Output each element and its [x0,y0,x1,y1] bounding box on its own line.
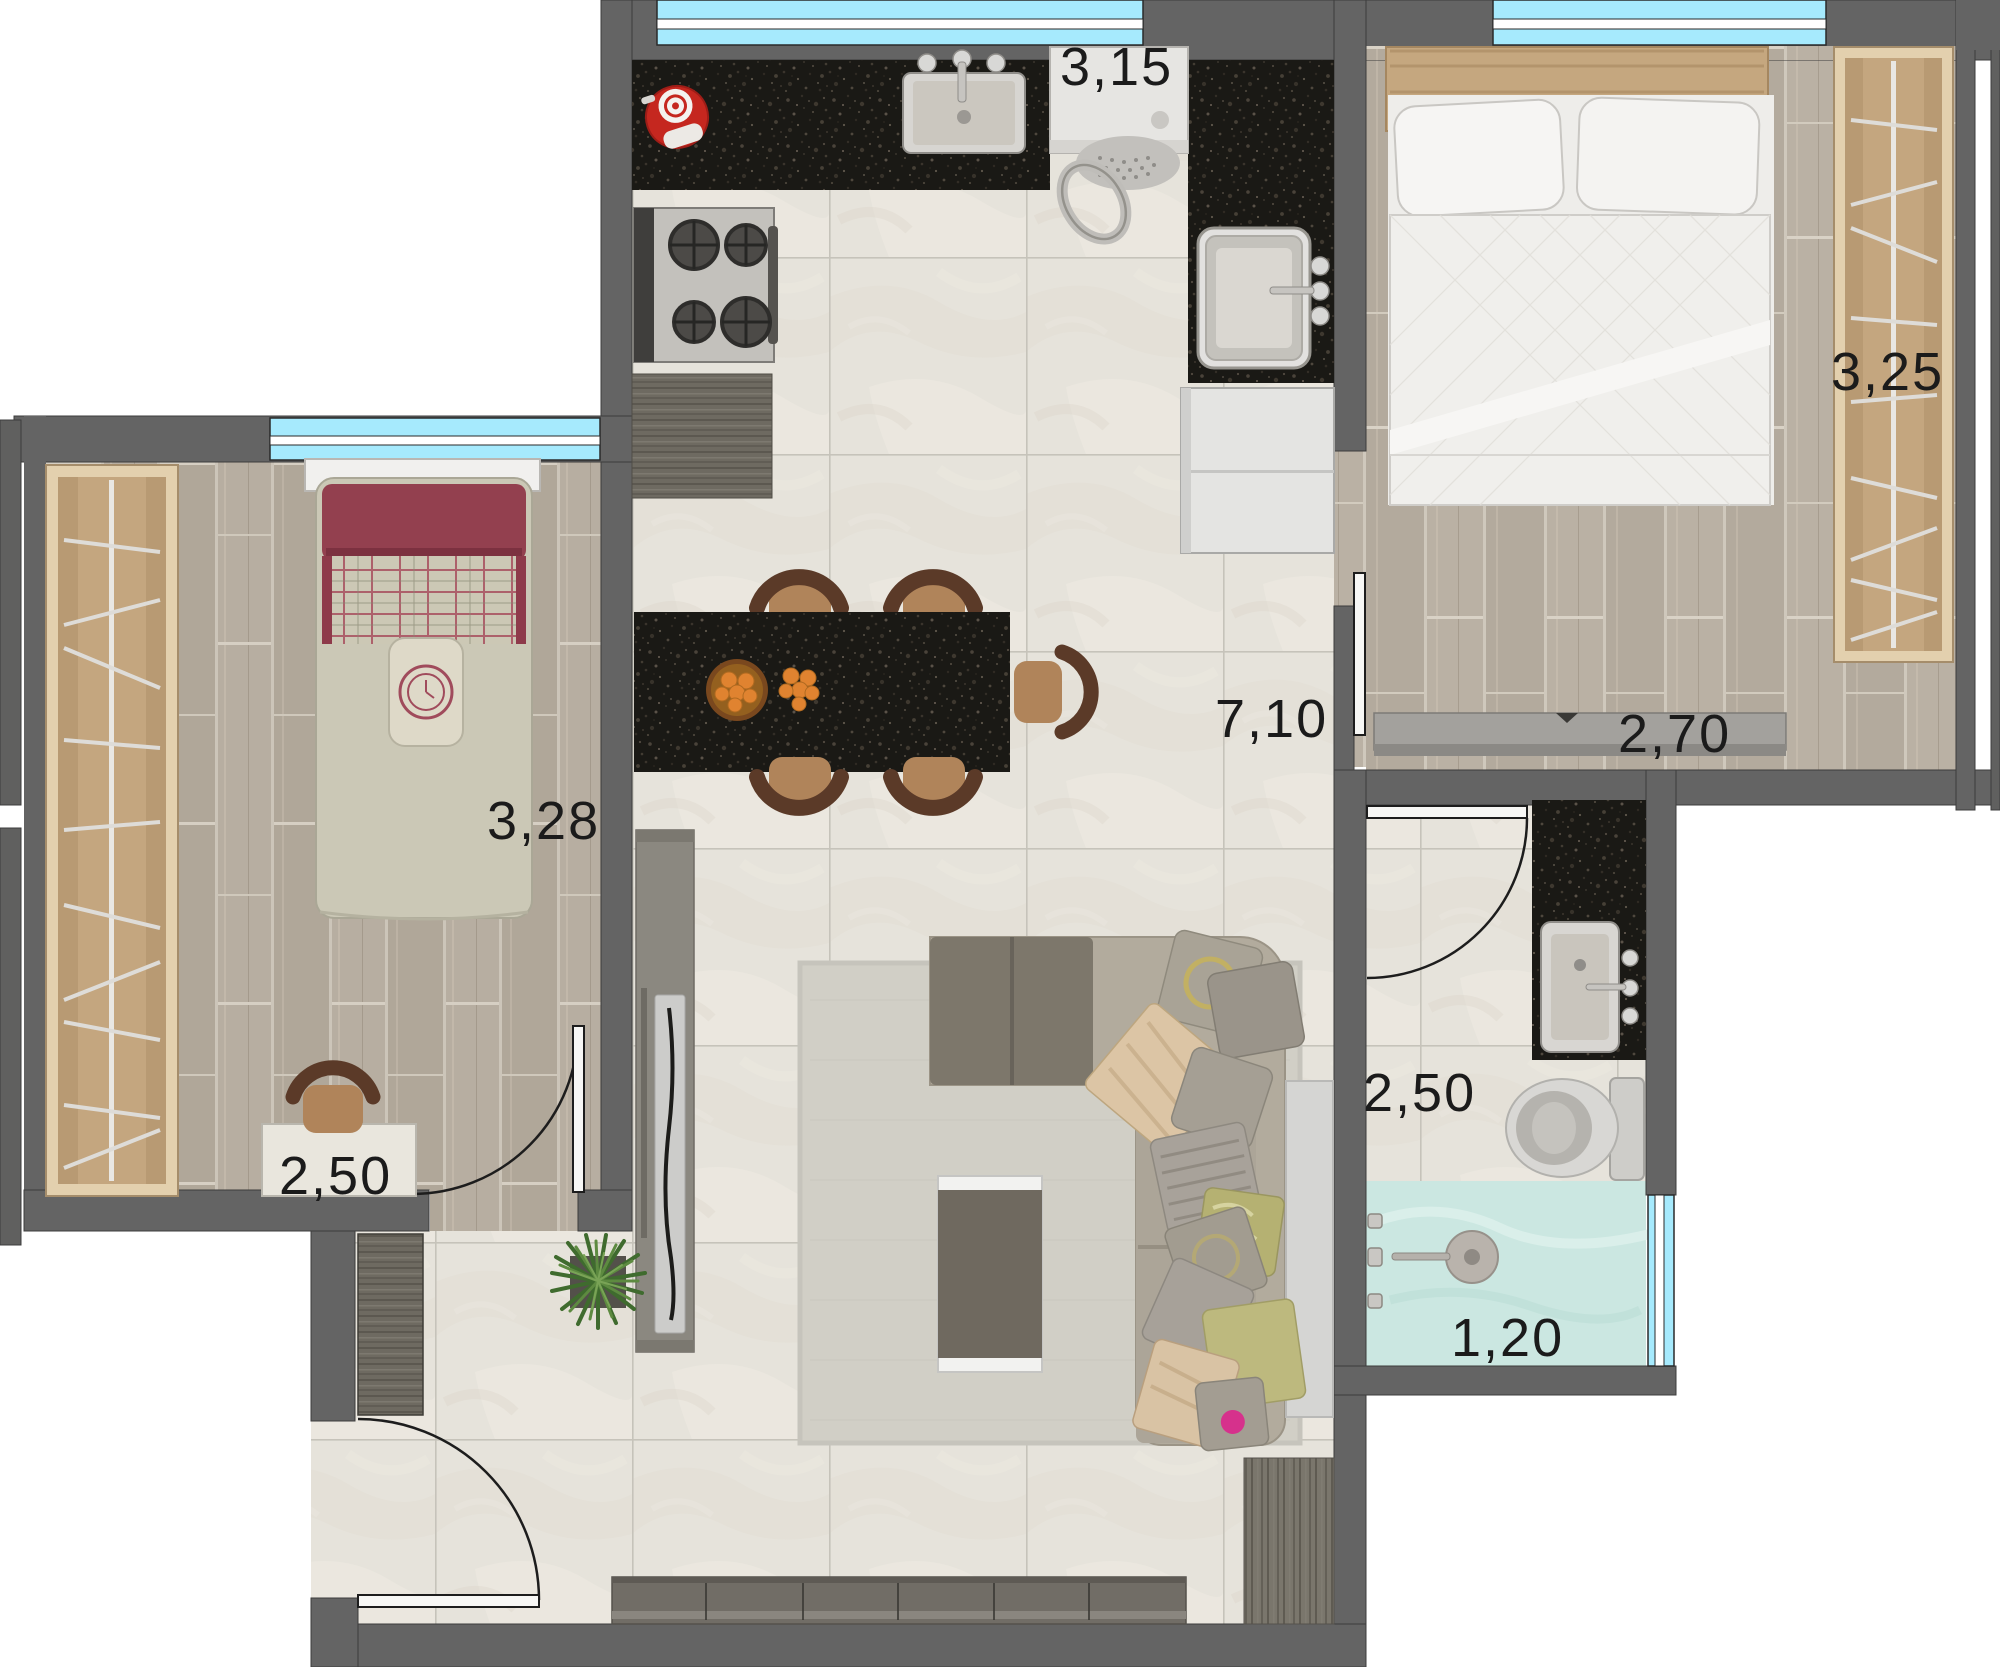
svg-text:1,20: 1,20 [1451,1308,1564,1368]
svg-text:2,50: 2,50 [1363,1063,1476,1123]
svg-text:2,50: 2,50 [279,1146,392,1206]
svg-text:2,70: 2,70 [1618,704,1731,764]
svg-text:3,28: 3,28 [487,791,600,851]
svg-text:3,25: 3,25 [1831,342,1944,402]
svg-text:3,15: 3,15 [1060,37,1173,97]
svg-text:7,10: 7,10 [1215,689,1328,749]
